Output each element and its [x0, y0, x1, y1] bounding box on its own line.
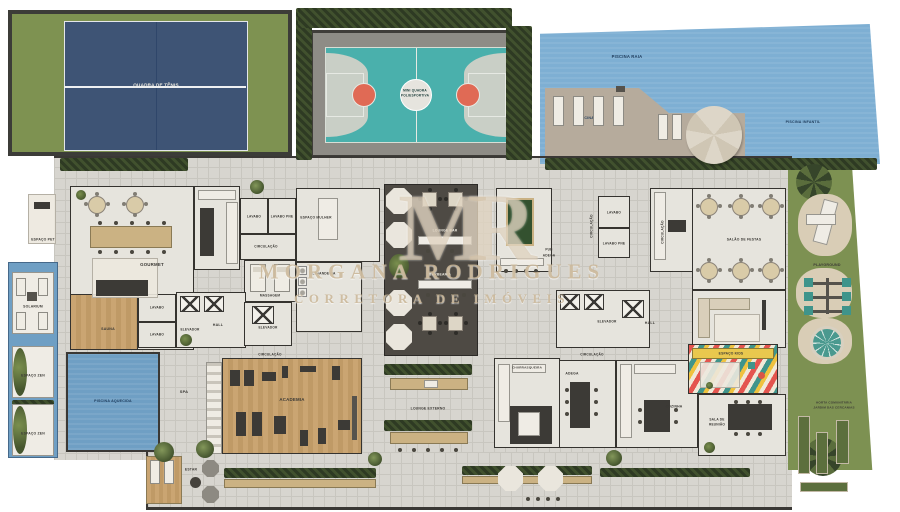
room-label: PUB	[545, 248, 552, 251]
floor-plan: QUADRA DE TÊNIS PISCINA RAIA PISCINA PIS…	[0, 0, 900, 512]
room-label: CIRCULAÇÃO	[254, 245, 277, 248]
room-label: LOUNGE EXTERNO	[411, 407, 446, 410]
plan-labels: MINI QUADRAPOLIESPORTIVASOLARIUMESPAÇO Z…	[0, 0, 900, 512]
room-label: SPA	[180, 390, 189, 394]
room-label: PLAYGROUND	[813, 264, 840, 268]
room-label: JARDIM DAS CERCANIAS	[813, 407, 854, 410]
room-label: CHURRASQUEIRA	[512, 366, 542, 369]
room-label: CIRCULAÇÃO	[258, 353, 281, 356]
room-label: ESPAÇO KIDS	[719, 352, 744, 355]
room-label: LAVABO	[607, 211, 621, 214]
room-label: HORTA COMUNITÁRIA	[816, 402, 852, 405]
room-label: CIRCULAÇÃO	[661, 220, 664, 243]
room-label: ESPAÇO ZEN	[21, 374, 45, 377]
room-label: ADEGA	[543, 254, 556, 257]
room-label: CIRCULAÇÃO	[590, 214, 593, 237]
room-label: LAVABO PNE	[271, 215, 293, 218]
room-label: MASSAGEM	[260, 294, 280, 297]
room-label: ESPAÇO MULHER	[300, 216, 331, 219]
room-label: MINI QUADRA	[403, 89, 427, 92]
room-label: HALL	[213, 324, 223, 328]
room-label: LAVANDERIA	[312, 272, 335, 275]
room-label: HALL	[645, 322, 655, 326]
room-label: GOURMET	[140, 263, 164, 267]
room-label: ESPAÇO ZEN	[21, 432, 45, 435]
room-label: ELEVADOR	[180, 328, 199, 331]
room-label: ACADEMIA	[279, 398, 304, 402]
room-label: POLIESPORTIVA	[401, 94, 429, 97]
room-label: LAVABO	[150, 333, 164, 336]
room-label: LAVABO PNE	[603, 242, 625, 245]
room-label: SALÃO DE FESTAS	[727, 238, 762, 241]
room-label: REUNIÃO	[709, 423, 725, 426]
room-label: SAUNA	[101, 328, 115, 332]
room-label: ELEVADOR	[258, 326, 277, 329]
room-label: LAVABO	[247, 215, 261, 218]
room-label: SOLARIUM	[23, 305, 43, 308]
room-label: COZINHA	[666, 405, 683, 408]
room-label: LOUNGE BAR	[433, 229, 458, 232]
room-label: ELEVADOR	[597, 320, 616, 323]
room-label: SALA DE	[709, 418, 724, 421]
room-label: LAVABO	[150, 306, 164, 309]
room-label: ESTAR	[185, 468, 197, 471]
room-label: CIRCULAÇÃO	[580, 353, 603, 356]
room-label: BARBEARIA	[429, 273, 451, 276]
room-label: ADEGA	[565, 372, 578, 375]
room-label: ESPAÇO PET	[31, 238, 55, 241]
